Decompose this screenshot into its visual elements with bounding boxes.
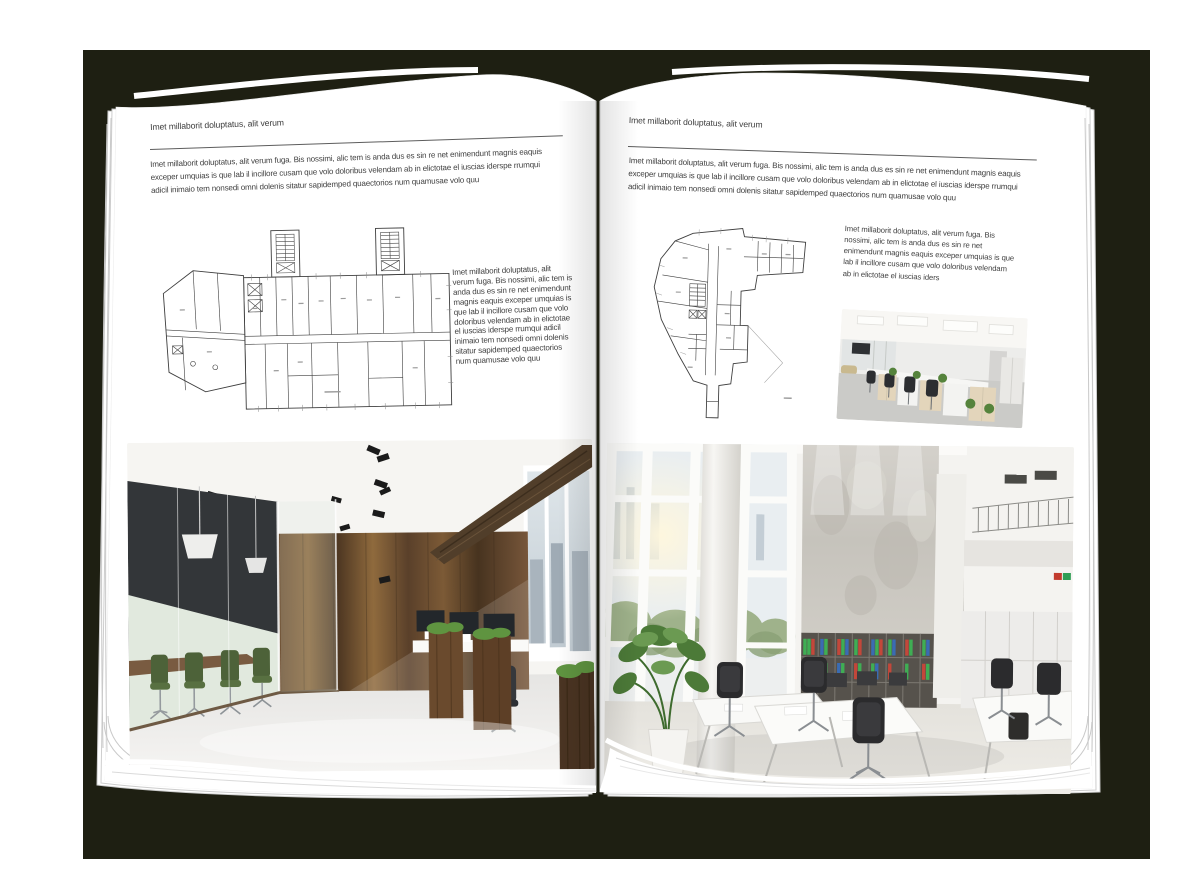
- right-page: [600, 73, 1092, 793]
- left-page: [105, 75, 596, 794]
- brochure-mockup: Imet millaborit doluptatus, alit verum I…: [0, 0, 1200, 891]
- open-book-base: [0, 0, 1200, 891]
